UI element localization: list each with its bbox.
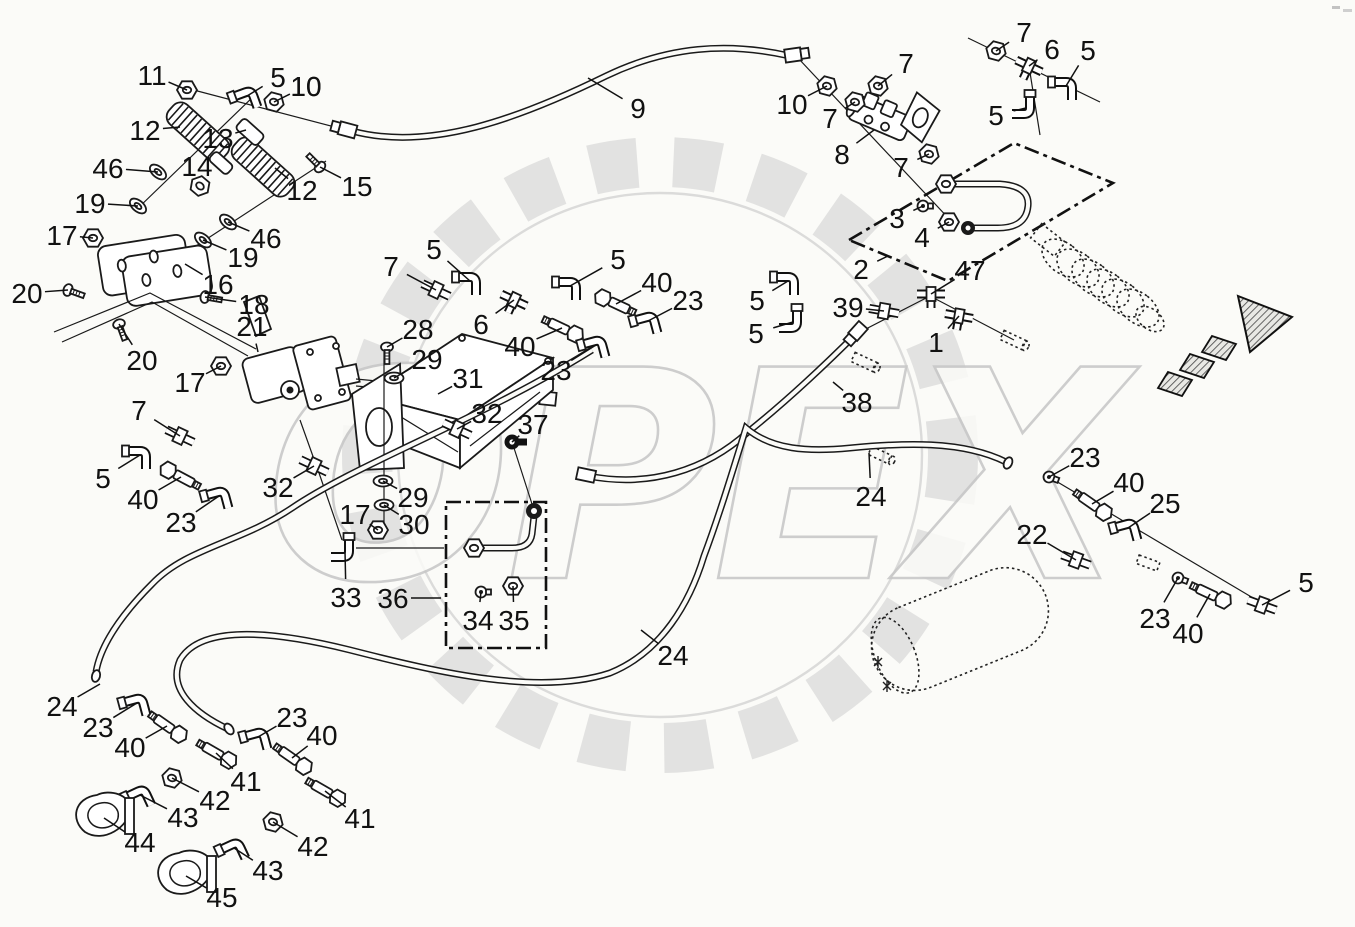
part-label: 5 [748, 318, 764, 349]
part-label: 5 [270, 62, 286, 93]
part-elbow [227, 85, 258, 115]
leader-line [256, 344, 258, 352]
part-label: 41 [230, 766, 261, 797]
part-label: 5 [95, 463, 111, 494]
part-label: 23 [540, 355, 571, 386]
part-label: 10 [776, 89, 807, 120]
leader-line [1197, 594, 1210, 617]
part-elbow [238, 726, 267, 755]
part-label: 7 [1016, 17, 1032, 48]
part-label: 5 [988, 100, 1004, 131]
part-label: 23 [672, 285, 703, 316]
part-label: 40 [1172, 618, 1203, 649]
part-elbow [122, 446, 146, 470]
part-elbow [770, 272, 794, 296]
part-label: 5 [1080, 35, 1096, 66]
part-label: 40 [114, 732, 145, 763]
part-label: 40 [504, 331, 535, 362]
part-plug [918, 201, 934, 212]
parts-diagram: OPEX [0, 0, 1355, 927]
part-label: 28 [402, 314, 433, 345]
part-label: 19 [74, 188, 105, 219]
part-label: 40 [127, 484, 158, 515]
part-label: 45 [206, 882, 237, 913]
hose-9 [330, 46, 810, 138]
part-label: 3 [889, 203, 905, 234]
part-screw [62, 283, 86, 302]
part-label: 32 [471, 398, 502, 429]
part-label: 40 [306, 720, 337, 751]
part-label: 12 [286, 175, 317, 206]
part-label: 4 [914, 222, 930, 253]
part-tee [917, 287, 945, 308]
part-elbow [552, 277, 576, 301]
leader-line [616, 291, 641, 304]
phantom-fitting [1136, 555, 1160, 571]
part-label: 12 [129, 115, 160, 146]
direction-arrow-icon [1158, 296, 1292, 396]
part-label: 8 [834, 139, 850, 170]
part-label: 34 [462, 605, 493, 636]
part-label: 43 [252, 855, 283, 886]
part-label: 37 [517, 409, 548, 440]
part-label: 14 [181, 151, 212, 182]
part-label: 5 [426, 234, 442, 265]
part-elbow [1048, 77, 1072, 101]
part-label: 32 [262, 472, 293, 503]
part-label: 7 [822, 103, 838, 134]
part-label: 5 [749, 285, 765, 316]
part-label: 15 [341, 171, 372, 202]
leader-line [1164, 578, 1178, 602]
part-label: 17 [46, 220, 77, 251]
part-label: 10 [290, 71, 321, 102]
part-label: 23 [165, 507, 196, 538]
part-label: 23 [276, 702, 307, 733]
part-label: 2 [853, 254, 869, 285]
part-label: 24 [855, 481, 886, 512]
leader-line [320, 167, 341, 178]
part-label: 44 [124, 827, 155, 858]
leader-line [570, 268, 602, 286]
part-tee [1010, 54, 1044, 85]
part-label: 7 [383, 251, 399, 282]
part-label: 9 [630, 93, 646, 124]
part-label: 21 [236, 311, 267, 342]
part-label: 42 [199, 785, 230, 816]
part-label: 6 [473, 309, 489, 340]
part-label: 20 [126, 345, 157, 376]
corner-mark [1343, 9, 1352, 12]
leader-line [877, 256, 888, 261]
corner-mark [1332, 6, 1340, 9]
part-label: 7 [893, 152, 909, 183]
part-label: 29 [411, 344, 442, 375]
parts-diagram-page: OPEX [0, 0, 1355, 927]
part-label: 23 [82, 712, 113, 743]
part-bolt [157, 460, 203, 494]
part-label: 5 [610, 244, 626, 275]
part-label: 6 [1044, 34, 1060, 65]
part-label: 39 [832, 292, 863, 323]
part-label: 30 [398, 509, 429, 540]
part-label: 43 [167, 802, 198, 833]
part-label: 7 [131, 395, 147, 426]
part-label: 17 [339, 499, 370, 530]
leader-line [78, 684, 100, 697]
part-label: 40 [1113, 467, 1144, 498]
leader-line [345, 551, 346, 579]
part-label: 24 [46, 691, 77, 722]
leader-line [588, 78, 623, 99]
part-label: 38 [841, 387, 872, 418]
part-label: 31 [452, 363, 483, 394]
leader-line [292, 746, 308, 758]
part-label: 47 [954, 255, 985, 286]
part-label: 5 [1298, 567, 1314, 598]
part-label: 40 [641, 267, 672, 298]
part-label: 11 [137, 60, 166, 91]
part-label: 46 [92, 153, 123, 184]
part-label: 17 [174, 367, 205, 398]
part-label: 20 [11, 278, 42, 309]
part-label: 16 [202, 269, 233, 300]
leader-line [140, 795, 167, 809]
part-label: 25 [1149, 488, 1180, 519]
part-label: 35 [498, 605, 529, 636]
part-screw [304, 151, 328, 175]
part-label: 22 [1016, 519, 1047, 550]
part-label: 7 [898, 48, 914, 79]
part-label: 23 [1069, 442, 1100, 473]
part-label: 24 [657, 640, 688, 671]
part-label: 23 [1139, 603, 1170, 634]
part-bolt [145, 708, 190, 746]
part-label: 1 [928, 327, 944, 358]
part-label: 36 [377, 583, 408, 614]
leader-line [146, 726, 167, 738]
part-label: 13 [202, 123, 233, 154]
part-label: 41 [344, 803, 375, 834]
part-label: 42 [297, 831, 328, 862]
part-label: 33 [330, 582, 361, 613]
